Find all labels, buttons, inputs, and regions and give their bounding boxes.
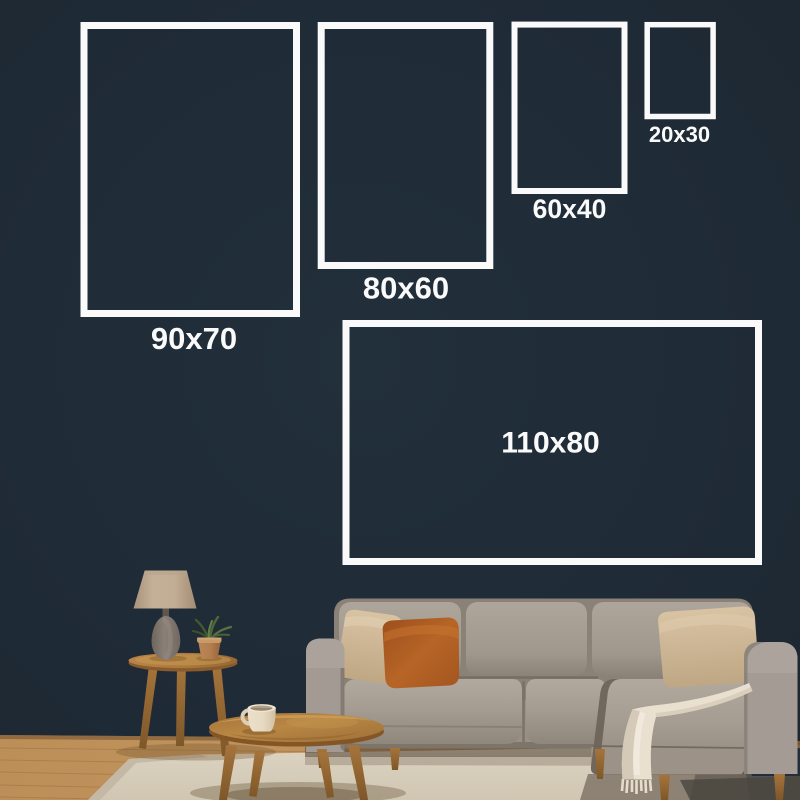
svg-text:90x70: 90x70 [151, 321, 237, 356]
svg-text:80x60: 80x60 [363, 271, 449, 306]
svg-text:110x80: 110x80 [501, 427, 599, 460]
svg-text:20x30: 20x30 [649, 122, 710, 147]
svg-text:60x40: 60x40 [533, 194, 607, 224]
